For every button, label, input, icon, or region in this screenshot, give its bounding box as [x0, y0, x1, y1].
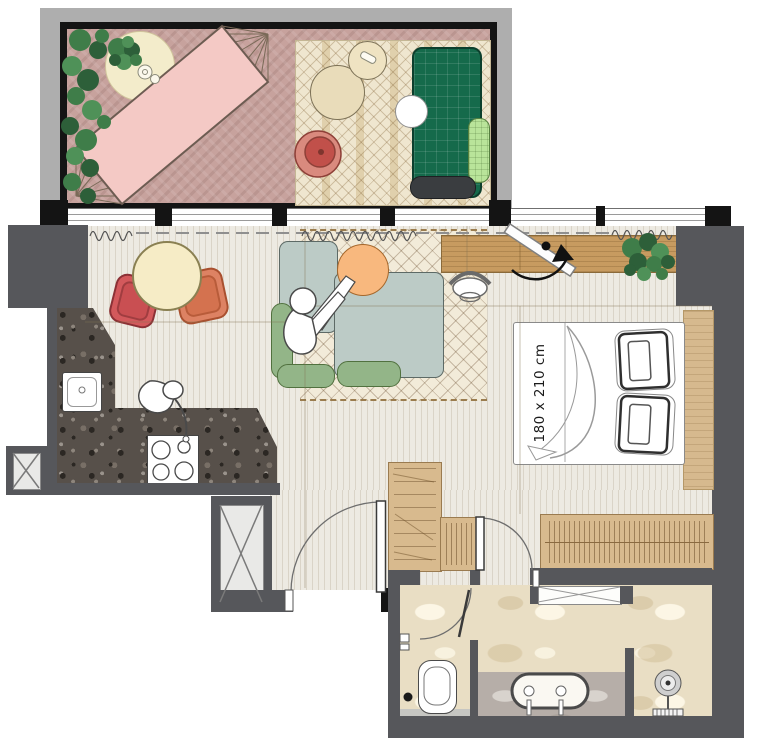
kitchen-sink: [62, 372, 102, 412]
shaft-left-inner: [13, 453, 41, 490]
wall-top-right-block: [676, 226, 744, 306]
niche-stub-left: [530, 586, 538, 604]
niche-stub-right: [620, 586, 633, 604]
wall-entry: [213, 590, 293, 612]
daybed-pillow: [468, 118, 490, 183]
wall-left-block: [8, 225, 88, 308]
floor-plan: 180 x 210 cm: [0, 0, 768, 754]
desk: [441, 235, 678, 273]
wall-below-wardrobe: [530, 568, 712, 586]
wall-wc-partition: [470, 640, 478, 718]
window-mullion: [705, 206, 731, 226]
side-table-orange: [337, 244, 389, 296]
wall-bottom: [388, 716, 744, 738]
wardrobe-small: [440, 517, 480, 571]
stove: [147, 435, 199, 485]
balcony-pouf: [395, 95, 428, 128]
wardrobe-tall: [388, 462, 442, 572]
window-mullion: [380, 206, 395, 226]
bath-niche: [538, 586, 622, 605]
wall-kitchen-left: [47, 308, 57, 495]
daybed-dark-pillow: [410, 176, 476, 199]
wall-kitchen-bottom: [47, 483, 280, 495]
balcony-coffee-table-small: [348, 41, 387, 80]
window-mullion: [596, 206, 605, 226]
balcony-round-rug: [105, 31, 175, 101]
wall-right: [712, 306, 744, 738]
window-mullion: [155, 206, 172, 226]
window-mullion: [272, 206, 287, 226]
toilet: [418, 660, 457, 714]
window-mullion: [489, 200, 511, 226]
sofa-cushion: [277, 364, 335, 388]
window-mullion: [40, 200, 68, 226]
bed-headboard: [683, 310, 714, 490]
wall-shower-partition: [625, 648, 634, 718]
wardrobe-bedroom: [540, 514, 714, 570]
sofa-cushion: [337, 361, 401, 387]
dining-table: [132, 241, 202, 311]
vanity-counter: [478, 672, 625, 718]
bed-size-label: 180 x 210 cm: [532, 344, 548, 443]
